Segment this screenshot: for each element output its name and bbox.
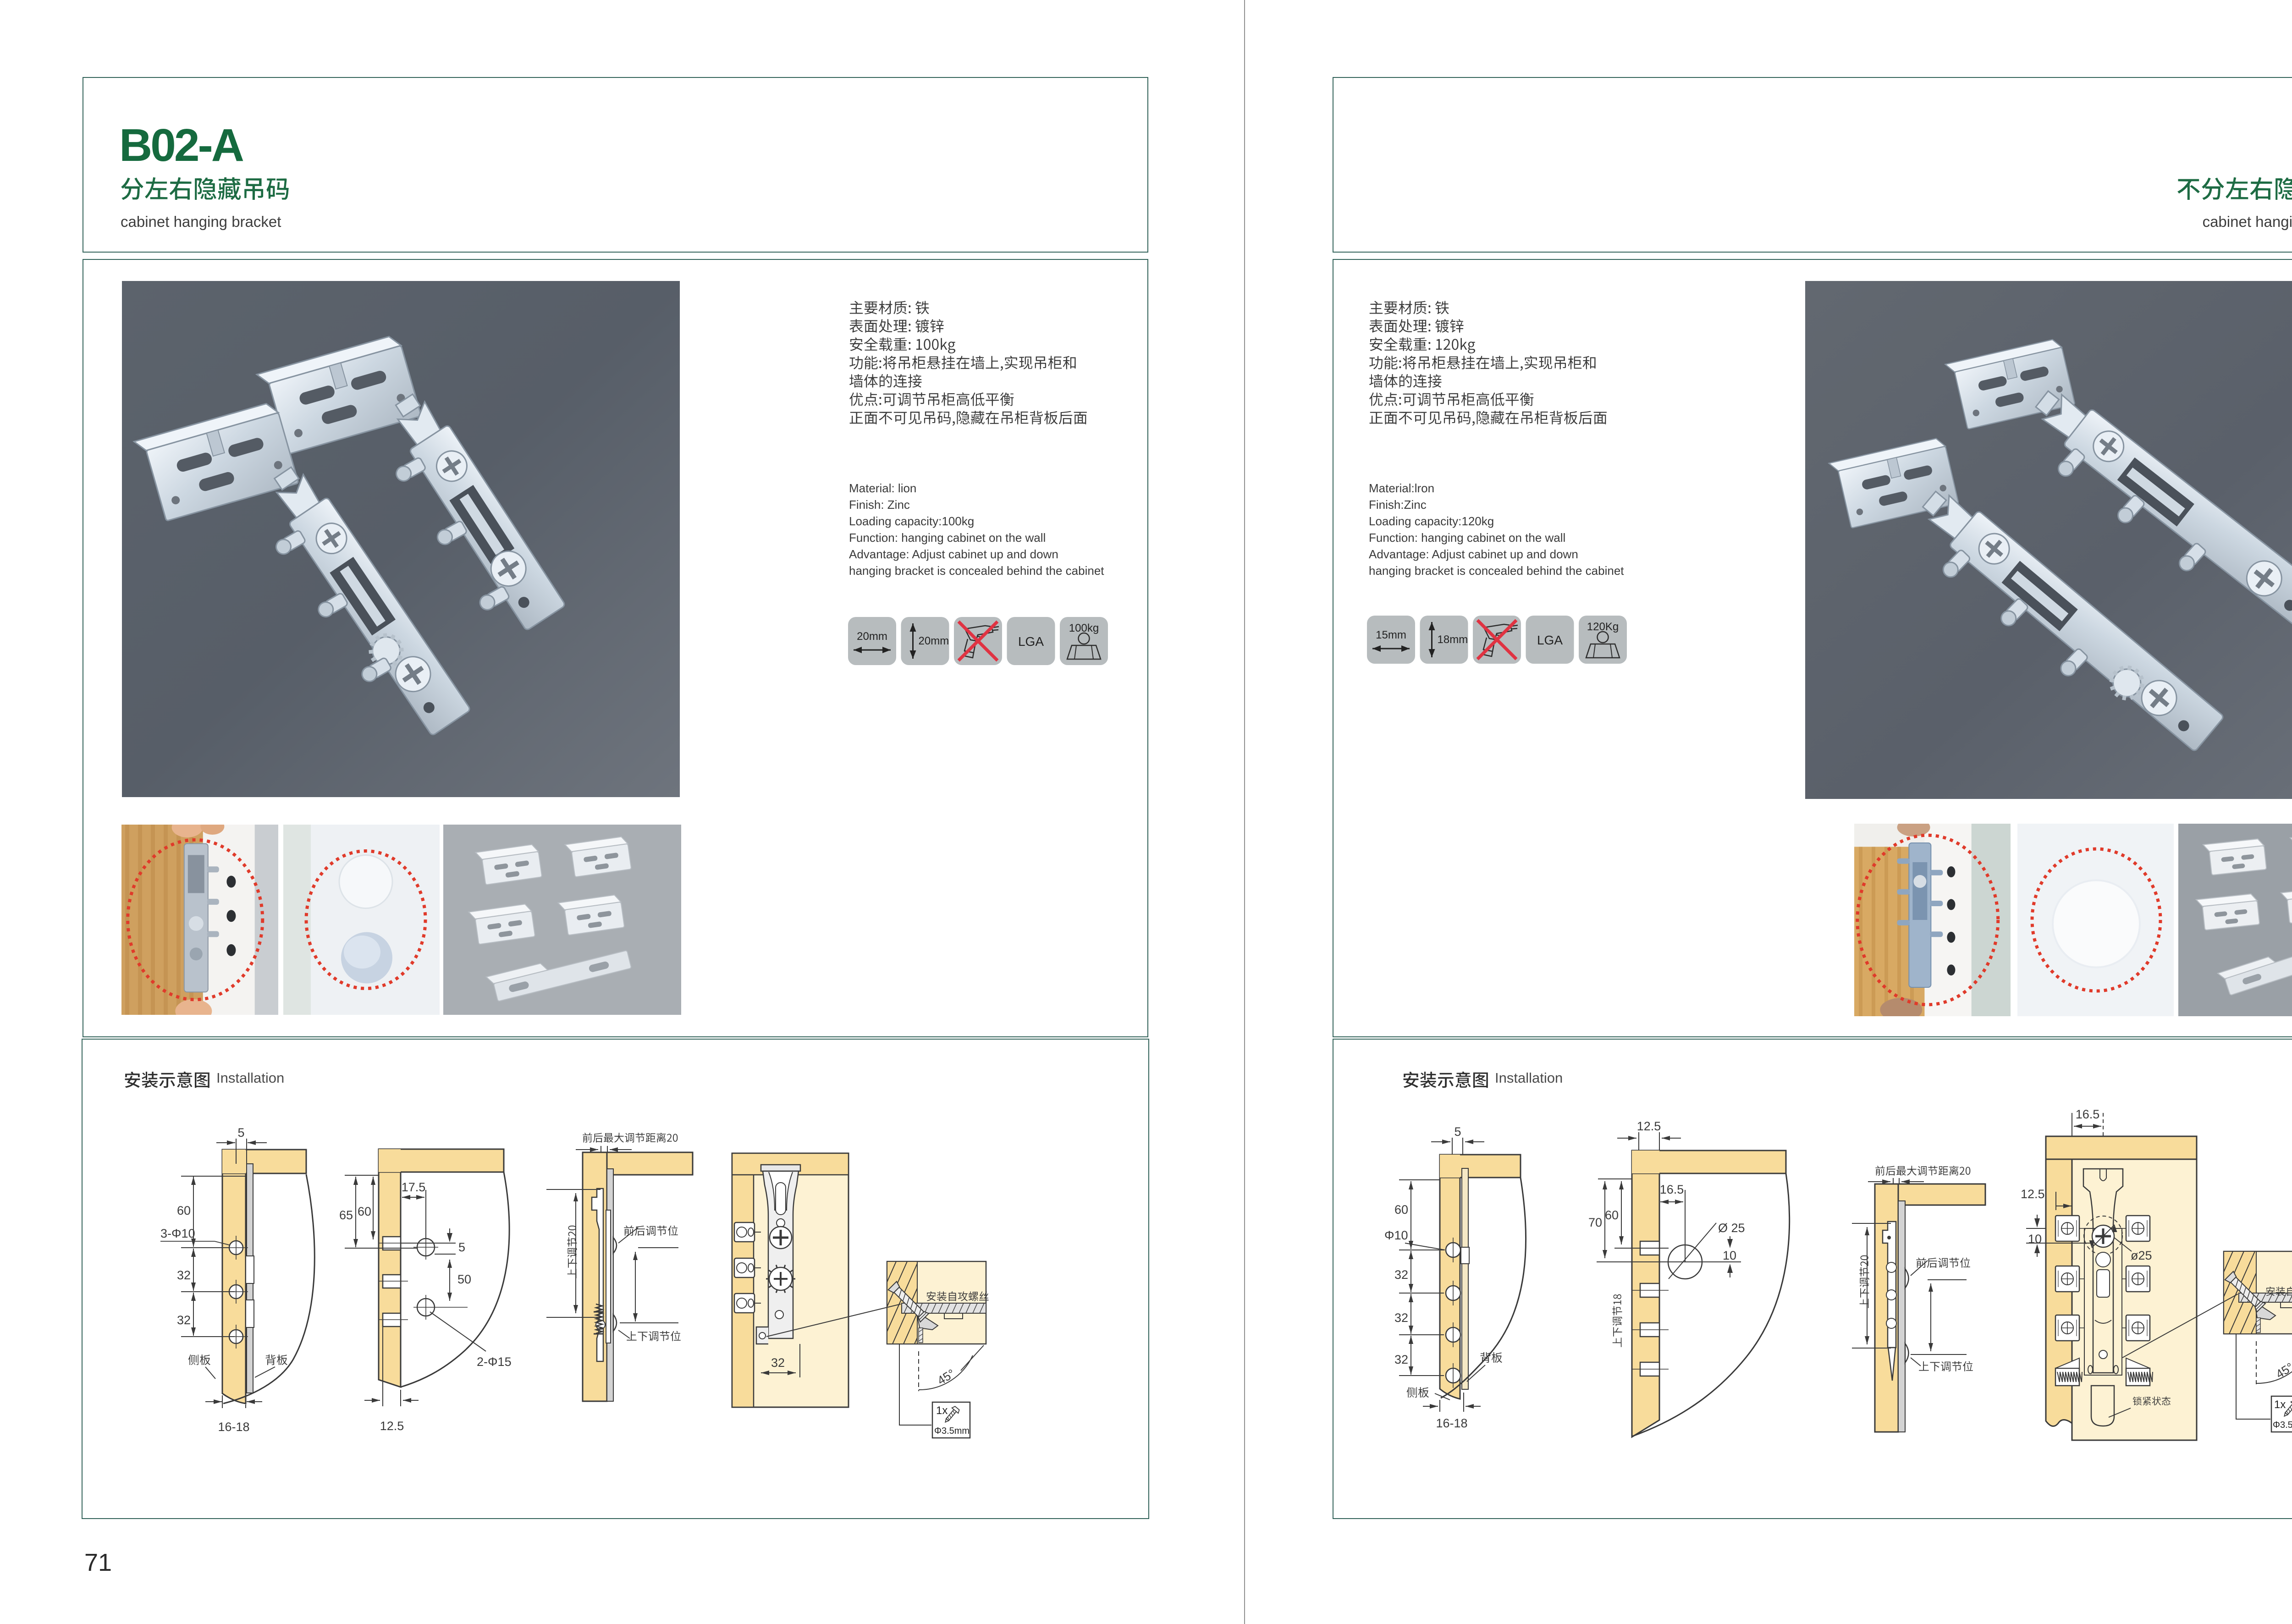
svg-text:65: 65 bbox=[339, 1208, 353, 1222]
svg-text:16-18: 16-18 bbox=[218, 1420, 249, 1434]
svg-text:32: 32 bbox=[771, 1356, 785, 1370]
svg-text:32: 32 bbox=[1394, 1268, 1408, 1282]
svg-text:3-Φ10: 3-Φ10 bbox=[160, 1227, 195, 1240]
svg-text:50: 50 bbox=[457, 1272, 471, 1286]
svg-text:20mm: 20mm bbox=[919, 635, 949, 647]
svg-text:60: 60 bbox=[358, 1205, 371, 1218]
svg-text:70: 70 bbox=[1588, 1216, 1602, 1229]
svg-text:20mm: 20mm bbox=[857, 630, 887, 643]
svg-text:Φ3.5mm: Φ3.5mm bbox=[2273, 1420, 2292, 1430]
svg-text:12.5: 12.5 bbox=[380, 1419, 404, 1433]
svg-text:ø25: ø25 bbox=[2131, 1249, 2152, 1262]
svg-text:12.5: 12.5 bbox=[2021, 1187, 2045, 1201]
svg-text:5: 5 bbox=[237, 1126, 244, 1140]
svg-text:1x: 1x bbox=[2274, 1398, 2286, 1411]
svg-text:16-18: 16-18 bbox=[1436, 1416, 1467, 1430]
svg-text:32: 32 bbox=[177, 1313, 191, 1327]
svg-text:17.5: 17.5 bbox=[402, 1180, 426, 1194]
svg-text:15mm: 15mm bbox=[1376, 629, 1406, 641]
svg-text:Φ3.5mm: Φ3.5mm bbox=[934, 1426, 970, 1436]
svg-text:45°: 45° bbox=[2273, 1360, 2292, 1381]
svg-text:LGA: LGA bbox=[1537, 633, 1563, 647]
svg-text:Φ10: Φ10 bbox=[1384, 1228, 1408, 1242]
svg-text:16.5: 16.5 bbox=[1660, 1183, 1684, 1196]
svg-text:1x: 1x bbox=[936, 1404, 948, 1417]
svg-text:5: 5 bbox=[458, 1240, 465, 1254]
svg-text:10: 10 bbox=[2028, 1232, 2042, 1246]
svg-text:12.5: 12.5 bbox=[1637, 1119, 1661, 1133]
svg-text:2-Φ15: 2-Φ15 bbox=[477, 1355, 512, 1369]
svg-text:32: 32 bbox=[177, 1268, 191, 1282]
svg-text:60: 60 bbox=[1394, 1203, 1408, 1217]
svg-text:60: 60 bbox=[1605, 1208, 1619, 1222]
svg-text:LGA: LGA bbox=[1018, 634, 1044, 649]
svg-text:32: 32 bbox=[1394, 1353, 1408, 1366]
svg-text:32: 32 bbox=[1394, 1311, 1408, 1325]
svg-text:5: 5 bbox=[1454, 1125, 1461, 1139]
svg-text:45°: 45° bbox=[935, 1366, 957, 1387]
svg-text:60: 60 bbox=[177, 1204, 191, 1217]
svg-text:16.5: 16.5 bbox=[2076, 1107, 2100, 1121]
svg-text:18mm: 18mm bbox=[1438, 633, 1468, 646]
svg-text:Ø 25: Ø 25 bbox=[1718, 1221, 1745, 1235]
svg-text:10: 10 bbox=[1723, 1249, 1736, 1262]
